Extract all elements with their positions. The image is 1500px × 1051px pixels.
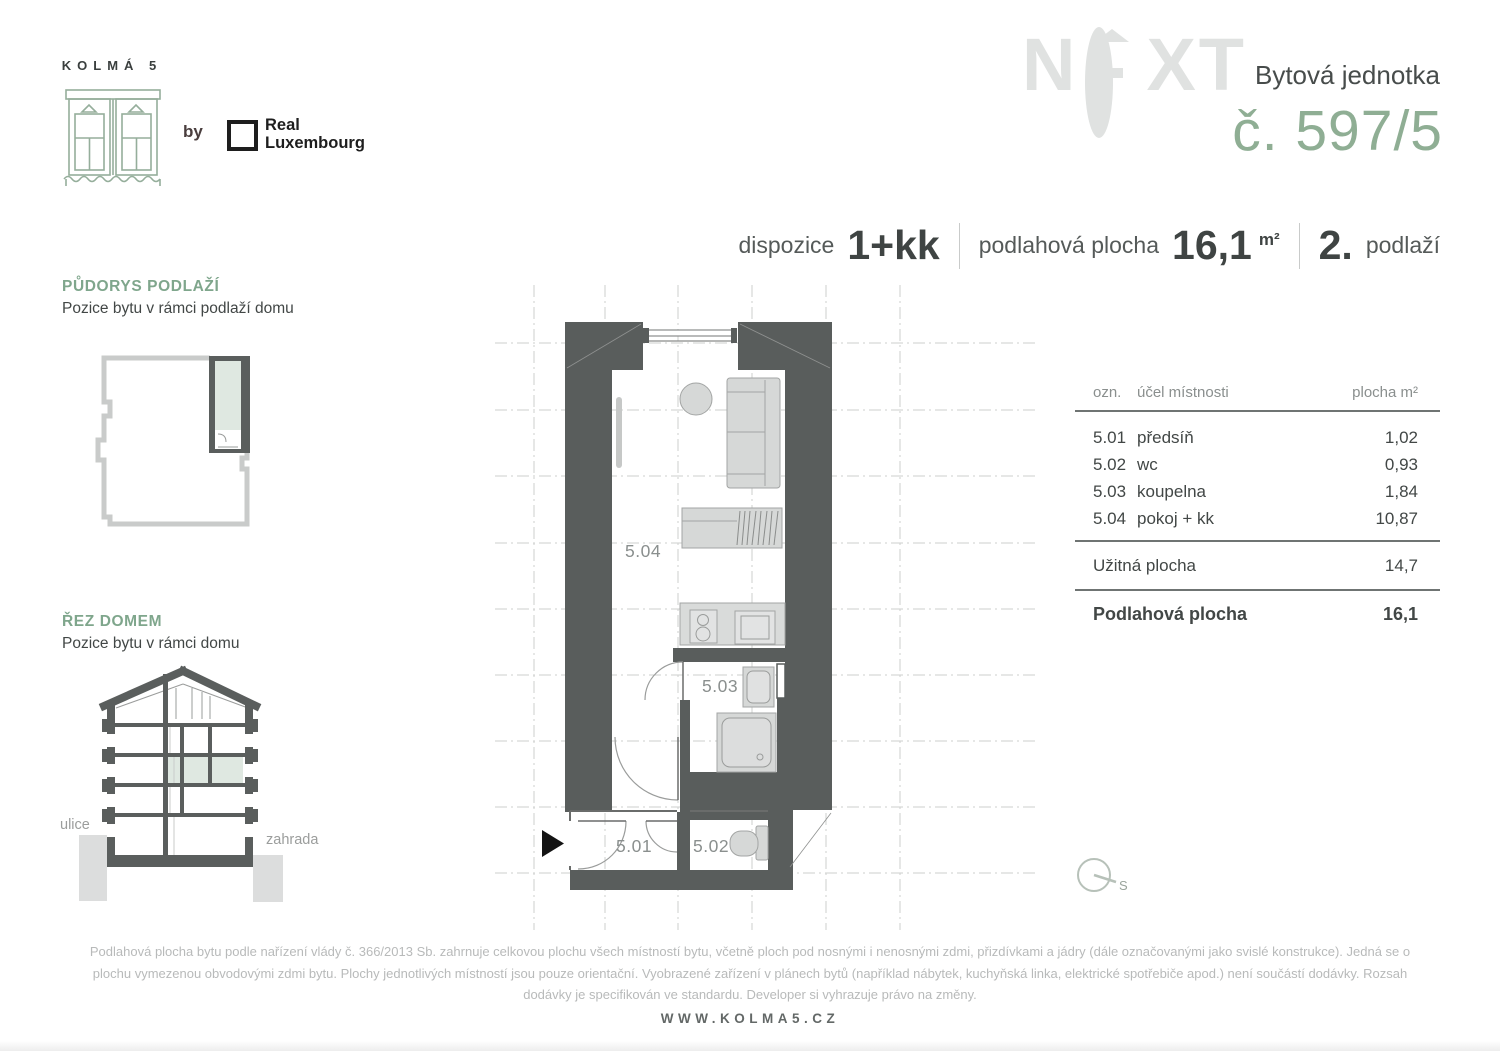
table-row: 5.04 pokoj + kk 10,87 <box>1075 505 1440 532</box>
sofa-icon <box>727 378 780 488</box>
floorplan-locator-title: PŮDORYS PODLAŽÍ <box>62 278 219 296</box>
shower-icon <box>717 713 776 772</box>
row-name: wc <box>1137 455 1350 475</box>
usable-area-row: Užitná plocha 14,7 <box>1075 542 1440 589</box>
floor-label: podlaží <box>1366 232 1440 259</box>
section-locator-title: ŘEZ DOMEM <box>62 613 162 631</box>
row-area: 1,02 <box>1350 428 1440 448</box>
partner-line-1: Real <box>265 117 365 135</box>
bottom-edge-strip <box>0 1041 1500 1051</box>
section-locator-subtitle: Pozice bytu v rámci domu <box>62 635 239 653</box>
area-unit: m² <box>1259 230 1280 250</box>
room-label-5-03: 5.03 <box>702 676 738 696</box>
total-area-label: Podlahová plocha <box>1075 604 1350 625</box>
area-label: podlahová plocha <box>979 232 1159 259</box>
row-area: 0,93 <box>1350 455 1440 475</box>
wardrobe-icon <box>682 508 782 548</box>
next-e-icon <box>1085 46 1139 100</box>
entrance-arrow-icon <box>542 830 564 857</box>
brand-building-icon <box>62 82 164 190</box>
toilet-icon <box>730 826 768 860</box>
website-text: WWW.KOLMA5.CZ <box>0 1011 1500 1026</box>
shaft-niche <box>777 664 785 698</box>
real-luxembourg-name: Real Luxembourg <box>265 117 365 152</box>
by-label: by <box>183 122 203 142</box>
total-area-row: Podlahová plocha 16,1 <box>1075 591 1440 625</box>
real-luxembourg-logo-icon <box>227 120 258 151</box>
floorplan-locator-subtitle: Pozice bytu v rámci podlaží domu <box>62 300 294 318</box>
washbasin-icon <box>743 667 774 707</box>
row-id: 5.03 <box>1075 482 1137 502</box>
unit-type-label: Bytová jednotka <box>1255 60 1440 91</box>
room-label-5-01: 5.01 <box>616 836 652 856</box>
row-name: pokoj + kk <box>1137 509 1350 529</box>
table-icon <box>680 383 712 415</box>
street-label: ulice <box>60 817 90 833</box>
usable-area-label: Užitná plocha <box>1075 556 1350 576</box>
floor-plan: 5.04 5.03 5.01 5.02 <box>490 280 1040 935</box>
spec-strip: dispozice 1+kk podlahová plocha 16,1 m² … <box>738 222 1440 269</box>
row-area: 1,84 <box>1350 482 1440 502</box>
partner-line-2: Luxembourg <box>265 135 365 153</box>
kitchen-icon <box>680 603 785 645</box>
next-letters-xt: XT <box>1146 28 1247 102</box>
brand-name: KOLMÁ 5 <box>58 58 166 73</box>
header-ucel: účel místnosti <box>1137 384 1350 401</box>
table-row: 5.02 wc 0,93 <box>1075 451 1440 478</box>
window-icon <box>643 328 737 343</box>
table-row: 5.01 předsíň 1,02 <box>1075 424 1440 451</box>
room-label-5-02: 5.02 <box>693 836 729 856</box>
row-id: 5.04 <box>1075 509 1137 529</box>
legal-disclaimer: Podlahová plocha bytu podle nařízení vlá… <box>70 941 1430 1006</box>
floor-value: 2. <box>1319 222 1353 269</box>
dispozice-label: dispozice <box>738 232 834 259</box>
row-name: předsíň <box>1137 428 1350 448</box>
next-letter-n: N <box>1022 28 1078 102</box>
floor-locator-map <box>95 352 255 532</box>
header-plocha: plocha m² <box>1350 384 1440 401</box>
spec-divider <box>959 223 960 269</box>
unit-number: č. 597/5 <box>1232 98 1443 164</box>
row-id: 5.01 <box>1075 428 1137 448</box>
floorplan-sheet: { "brand": { "name": "KOLMÁ 5", "by": "b… <box>0 0 1500 1051</box>
spec-divider-2 <box>1299 223 1300 269</box>
dispozice-value: 1+kk <box>847 222 939 269</box>
row-area: 10,87 <box>1350 509 1440 529</box>
house-section-diagram: ulice zahrada <box>58 662 330 904</box>
total-area-value: 16,1 <box>1350 604 1440 625</box>
row-name: koupelna <box>1137 482 1350 502</box>
compass-label: S <box>1119 878 1128 893</box>
area-value: 16,1 <box>1172 222 1252 269</box>
table-row: 5.03 koupelna 1,84 <box>1075 478 1440 505</box>
room-label-5-04: 5.04 <box>625 541 661 561</box>
radiator-icon <box>616 397 622 468</box>
table-header-row: ozn. účel místnosti plocha m² <box>1075 384 1440 410</box>
next-watermark: N XT <box>1022 28 1247 102</box>
usable-area-value: 14,7 <box>1350 556 1440 576</box>
garden-label: zahrada <box>266 832 319 848</box>
room-area-table: ozn. účel místnosti plocha m² 5.01 předs… <box>1075 384 1440 625</box>
row-id: 5.02 <box>1075 455 1137 475</box>
header-ozn: ozn. <box>1075 384 1137 401</box>
compass-icon: S <box>1070 850 1140 902</box>
